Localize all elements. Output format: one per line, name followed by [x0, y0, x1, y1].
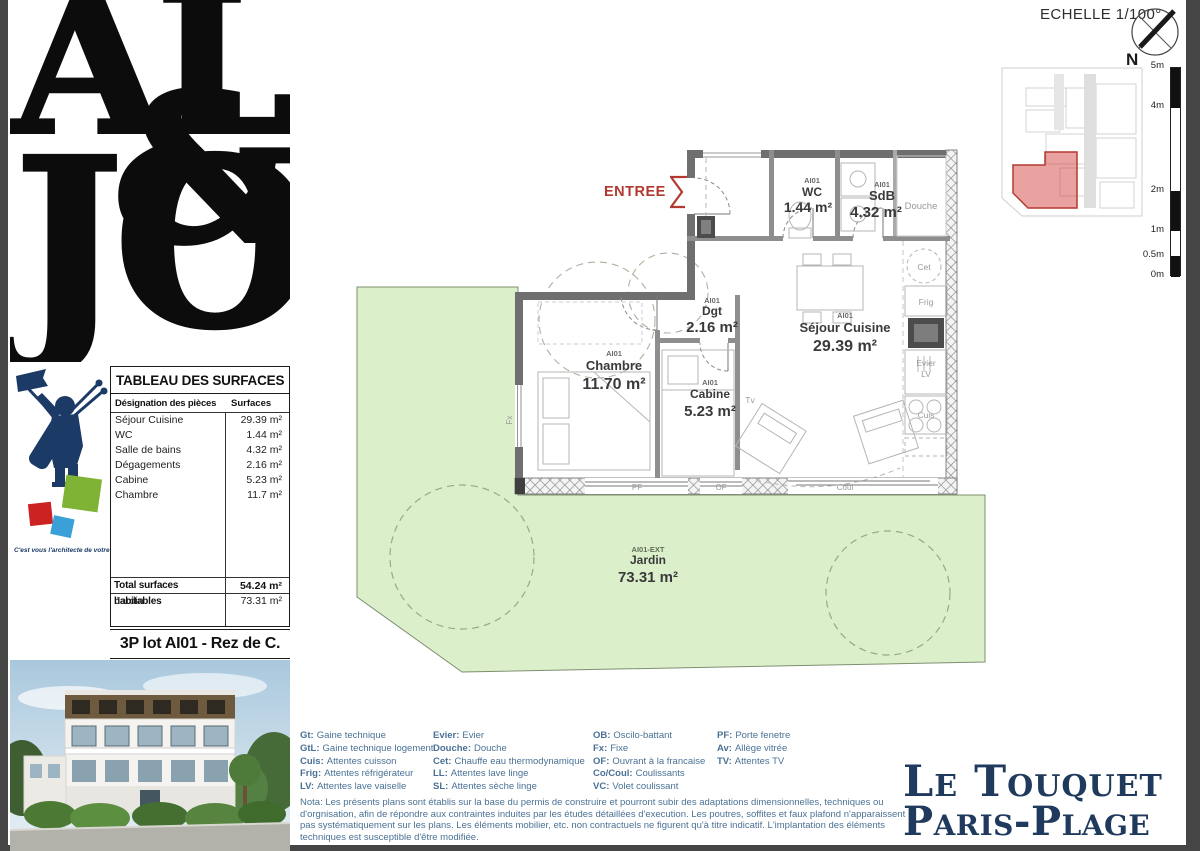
legend-column: Evier:Evier Douche:Douche Cet:Chauffe ea… — [433, 730, 585, 794]
legend-abbr: PF: — [717, 730, 732, 741]
pf-label: PF — [632, 483, 642, 492]
legend-column: OB:Oscilo-battant Fx:Fixe OF:Ouvrant à l… — [593, 730, 705, 794]
legend-text: Douche — [474, 743, 507, 754]
mascot-silhouette — [16, 369, 108, 487]
surface-table: TABLEAU DES SURFACES Désignation des piè… — [110, 366, 290, 627]
room-name: Dgt — [702, 304, 722, 318]
jardin-value: 73.31 m² — [225, 594, 289, 609]
aljo-logo: AL & JO — [10, 0, 290, 362]
legend-abbr: TV: — [717, 756, 732, 767]
douche-label: Douche — [905, 201, 938, 212]
of-label: OF — [715, 483, 726, 492]
legend-abbr: Douche: — [433, 743, 471, 754]
row-label: Cabine — [111, 473, 225, 488]
room-name: Cabine — [690, 387, 730, 401]
building-photo — [10, 660, 290, 851]
legend-abbr: OB: — [593, 730, 610, 741]
total-row: Total surfaces habitables 54.24 m² — [111, 577, 289, 594]
room-code: AI01 — [837, 311, 853, 320]
room-name: Chambre — [586, 358, 642, 373]
surface-table-title: TABLEAU DES SURFACES — [111, 367, 289, 394]
legend-abbr: Evier: — [433, 730, 459, 741]
table-row: Cabine 5.23 m² — [111, 473, 289, 488]
cet-label: Cet — [917, 262, 931, 272]
legend-column: PF:Porte fenetre Av:Allège vitrée TV:Att… — [717, 730, 790, 768]
row-value: 29.39 m² — [225, 413, 289, 428]
brand-line2: Paris-Plage — [903, 803, 1188, 841]
col-surface: Surfaces — [225, 394, 289, 412]
room-area: 5.23 m² — [684, 403, 736, 420]
legend-abbr: Av: — [717, 743, 732, 754]
legend-abbr: Frig: — [300, 768, 321, 779]
legend-text: Attentes lave vaiselle — [317, 781, 406, 792]
legend-text: Gaine technique logement — [323, 743, 434, 754]
legend-text: Porte fenetre — [735, 730, 790, 741]
scale-tick: 5m — [1130, 60, 1164, 71]
legend-text: Coulissants — [636, 768, 685, 779]
key-plan-map — [996, 58, 1148, 220]
nota-text: Nota: Les présents plans sont établis su… — [300, 797, 906, 843]
room-area: 73.31 m² — [618, 569, 678, 586]
legend-abbr: LV: — [300, 781, 314, 792]
table-row: Salle de bains 4.32 m² — [111, 443, 289, 458]
legend-abbr: SL: — [433, 781, 448, 792]
legend-text: Attentes TV — [735, 756, 784, 767]
legend-abbr: Co/Coul: — [593, 768, 633, 779]
room-area: 4.32 m² — [850, 204, 902, 221]
room-name: SdB — [869, 188, 895, 203]
scale-bar-strip — [1170, 67, 1181, 276]
evier-label: Evier — [916, 358, 936, 368]
legend-text: Attentes sèche linge — [451, 781, 537, 792]
table-row: Dégagements 2.16 m² — [111, 458, 289, 473]
row-value: 2.16 m² — [225, 458, 289, 473]
room-code: AI01 — [702, 378, 718, 387]
room-code: AI01 — [606, 349, 622, 358]
lot-title: 3P lot AI01 - Rez de C. — [110, 629, 290, 659]
legend-abbr: LL: — [433, 768, 448, 779]
tv-label: Tv — [745, 395, 755, 405]
table-row: WC 1.44 m² — [111, 428, 289, 443]
cuis-label: Cuis — [917, 410, 934, 420]
legend-text: Attentes lave linge — [451, 768, 529, 779]
row-label: WC — [111, 428, 225, 443]
brand-tagline: C'est vous l'architecte de votre vie — [14, 547, 124, 554]
scale-tick: 0.5m — [1130, 249, 1164, 260]
legend-text: Evier — [462, 730, 484, 741]
row-value: 1.44 m² — [225, 428, 289, 443]
frig-label: Frig — [919, 297, 934, 307]
surface-table-header: Désignation des pièces Surfaces — [111, 394, 289, 413]
jardin-label: Jardin — [111, 594, 225, 609]
room-area: 11.70 m² — [582, 376, 645, 393]
row-label: Séjour Cuisine — [111, 413, 225, 428]
col-designation: Désignation des pièces — [111, 394, 225, 412]
table-row: Chambre 11.7 m² — [111, 488, 289, 503]
table-divider — [225, 413, 226, 626]
room-name: WC — [802, 185, 822, 199]
highlighted-lot — [1013, 152, 1077, 208]
scale-tick: 2m — [1130, 184, 1164, 195]
room-area: 2.16 m² — [686, 319, 738, 336]
row-label: Chambre — [111, 488, 225, 503]
scale-bar: 5m 4m 2m 1m 0.5m 0m — [1130, 58, 1188, 288]
legend-abbr: OF: — [593, 756, 609, 767]
legend-abbr: VC: — [593, 781, 609, 792]
legend-text: Volet coulissant — [612, 781, 678, 792]
legend-abbr: Cuis: — [300, 756, 324, 767]
room-area: 1.44 m² — [784, 199, 833, 215]
legend-abbr: Cet: — [433, 756, 451, 767]
legend-column: Gt:Gaine technique GtL:Gaine technique l… — [300, 730, 433, 794]
row-value: 4.32 m² — [225, 443, 289, 458]
legend-abbr: Gt: — [300, 730, 314, 741]
row-label: Dégagements — [111, 458, 225, 473]
mascot-illustration — [12, 368, 112, 544]
legend-text: Gaine technique — [317, 730, 386, 741]
total-label: Total surfaces habitables — [111, 578, 225, 593]
room-name: Séjour Cuisine — [799, 320, 890, 335]
lv-label: LV — [921, 369, 931, 379]
legend-text: Attentes réfrigérateur — [324, 768, 413, 779]
room-area: 29.39 m² — [813, 338, 877, 355]
scale-tick: 1m — [1130, 224, 1164, 235]
floor-plan: Douche Cet Frig Evier LV Cuis Tv PF OF C… — [300, 140, 1000, 685]
table-row: Séjour Cuisine 29.39 m² — [111, 413, 289, 428]
scale-tick: 4m — [1130, 100, 1164, 111]
row-value: 5.23 m² — [225, 473, 289, 488]
legend-text: Chauffe eau thermodynamique — [454, 756, 584, 767]
total-value: 54.24 m² — [225, 578, 289, 593]
city-brand-logo: Le Touquet Paris-Plage — [903, 762, 1188, 841]
room-code: AI01 — [804, 176, 820, 185]
legend-text: Allège vitrée — [735, 743, 787, 754]
legend-text: Attentes cuisson — [327, 756, 397, 767]
coul-label: Coul — [837, 483, 854, 492]
fx-window-label: Fx — [505, 416, 514, 425]
brand-line1: Le Touquet — [903, 762, 1188, 803]
legend-abbr: Fx: — [593, 743, 607, 754]
row-value: 11.7 m² — [225, 488, 289, 503]
row-label: Salle de bains — [111, 443, 225, 458]
aljo-logo-bottom-letters: JO — [14, 128, 290, 360]
legend-text: Ouvrant à la francaise — [612, 756, 705, 767]
legend-text: Fixe — [610, 743, 628, 754]
scale-tick: 0m — [1130, 269, 1164, 280]
jardin-row: Jardin 73.31 m² — [111, 594, 289, 609]
legend-text: Oscilo-battant — [613, 730, 672, 741]
room-name: Jardin — [630, 553, 666, 567]
legend-abbr: GtL: — [300, 743, 320, 754]
legend: Gt:Gaine technique GtL:Gaine technique l… — [300, 730, 845, 798]
